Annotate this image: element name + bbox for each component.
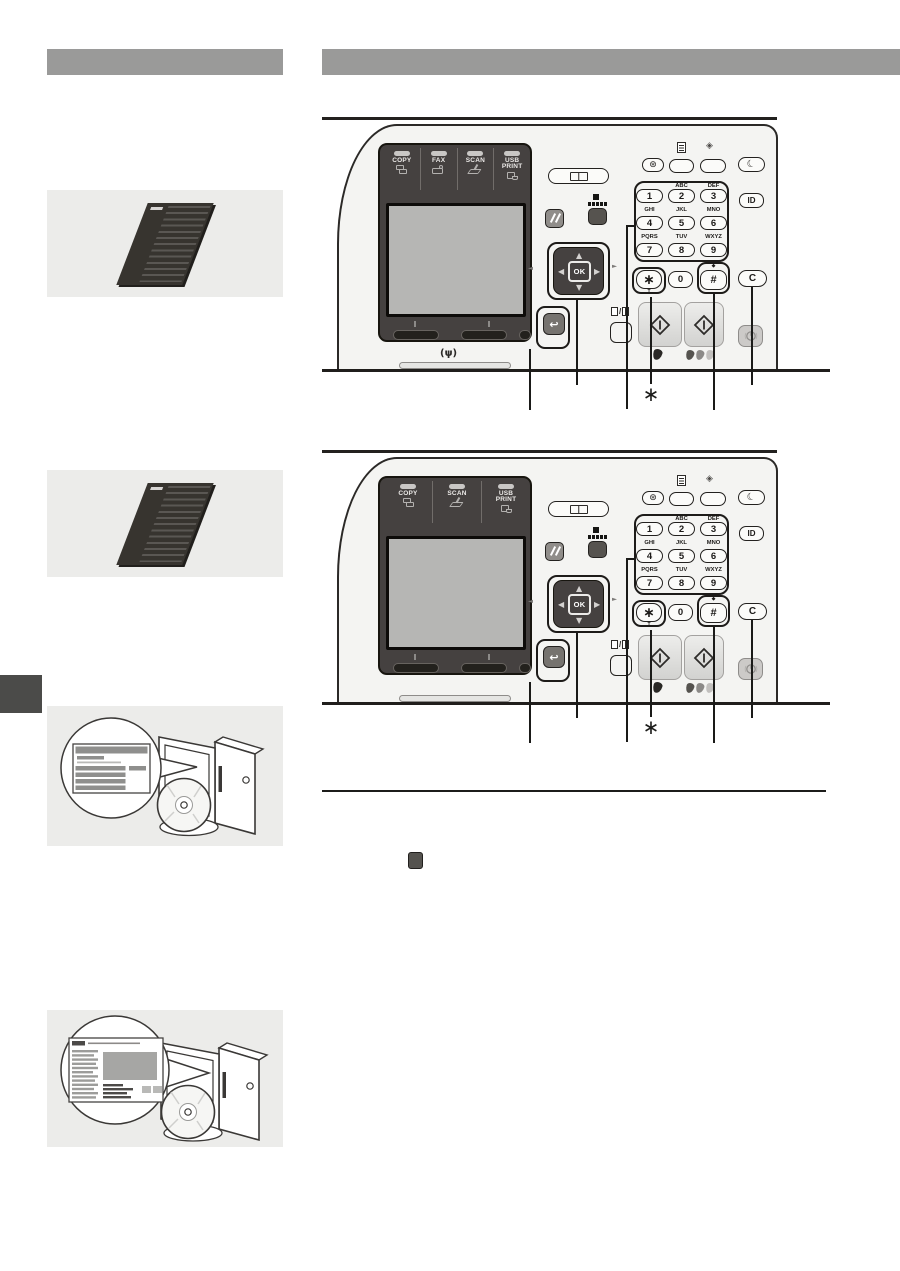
clear-button: C bbox=[738, 270, 767, 287]
setting-guide-illustration bbox=[47, 470, 283, 577]
keypad-letters: GHI bbox=[636, 207, 663, 213]
softkey-tick bbox=[488, 321, 490, 327]
mode-key-label: USB PRINT bbox=[497, 158, 527, 171]
mode-key-row: COPYFAXSCANUSB PRINT bbox=[384, 148, 530, 190]
emanual-page-illustration bbox=[47, 1010, 283, 1147]
emanual-toc-illustration bbox=[47, 706, 283, 846]
usb-print-mode-button: USB PRINT bbox=[493, 148, 530, 190]
stop-icon bbox=[593, 194, 599, 200]
keypad-letters: TUV bbox=[668, 234, 695, 240]
two-sided-button bbox=[610, 322, 632, 343]
numeric-keypad: ∗ T 0 ◆ # 1ABC2DEF3GHI4JKL5MNO6PQRS7TUV8… bbox=[634, 181, 731, 298]
keypad-letters: MNO bbox=[700, 540, 727, 546]
hash-key: # bbox=[700, 270, 727, 290]
copy-mode-button: COPY bbox=[384, 148, 420, 190]
callout-line-clear bbox=[751, 620, 753, 718]
mode-key-row: COPYSCANUSB PRINT bbox=[384, 481, 530, 523]
fax-icon bbox=[432, 165, 445, 175]
mode-key-label: SCAN bbox=[466, 158, 485, 165]
callout-line-hash bbox=[713, 294, 715, 410]
digit-key-3: 3 bbox=[700, 189, 727, 203]
mode-key-led bbox=[394, 151, 410, 156]
quiet-mode-button: ⊛ bbox=[642, 491, 664, 505]
fax-mode-button: FAX bbox=[420, 148, 457, 190]
digit-key-9: 9 bbox=[700, 243, 727, 257]
address-book-icon bbox=[570, 172, 588, 181]
keypad-letters: MNO bbox=[700, 207, 727, 213]
ok-button: OK bbox=[568, 261, 591, 282]
right-arrow-icon: ▶ bbox=[594, 601, 600, 609]
lcd-display bbox=[386, 536, 526, 650]
section-divider-rule bbox=[322, 790, 826, 792]
digit-key-1: 1 bbox=[636, 189, 663, 203]
digit-key-3: 3 bbox=[700, 522, 727, 536]
scan-mode-button: SCAN bbox=[457, 148, 494, 190]
nav-pad: ▲ ▼ ◀ ▶ OK bbox=[553, 580, 604, 628]
address-book-button bbox=[548, 501, 609, 517]
copy-mode-button: COPY bbox=[384, 481, 432, 523]
status-monitor-icon bbox=[677, 475, 686, 486]
volume-left-icon: ◄ bbox=[528, 264, 533, 272]
display-control-block: COPYSCANUSB PRINT bbox=[378, 476, 532, 675]
usb-print-icon bbox=[506, 172, 519, 182]
mode-key-led bbox=[498, 484, 514, 489]
mode-key-label: COPY bbox=[398, 491, 417, 498]
mode-key-led bbox=[504, 151, 520, 156]
start-diamond-icon bbox=[649, 647, 671, 669]
mode-key-label: COPY bbox=[392, 158, 411, 165]
zero-key: 0 bbox=[668, 604, 693, 621]
digit-key-6: 6 bbox=[700, 216, 727, 230]
control-panel-figure-without-fax: COPYSCANUSB PRINT ▲ ▼ ◀ ▶ OK ◄ ► ↩ / ⊛ ◈… bbox=[322, 450, 830, 750]
front-slot bbox=[399, 362, 511, 369]
up-arrow-icon: ▲ bbox=[576, 585, 582, 593]
digit-key-7: 7 bbox=[636, 576, 663, 590]
counter-check-icon: ◈ bbox=[706, 474, 713, 484]
volume-right-icon: ► bbox=[612, 262, 617, 270]
soft-key-left bbox=[393, 330, 439, 340]
stop-button bbox=[588, 541, 607, 558]
address-book-button bbox=[548, 168, 609, 184]
manual-logo bbox=[150, 487, 163, 490]
callout-line-back bbox=[529, 682, 531, 743]
keypad-letters: PQRS bbox=[636, 567, 663, 573]
status-monitor-button bbox=[669, 159, 694, 173]
right-arrow-icon: ▶ bbox=[594, 268, 600, 276]
color-start-button bbox=[684, 302, 724, 347]
machine-top-edge bbox=[322, 117, 777, 120]
color-start-button bbox=[684, 635, 724, 680]
keypad-letters: JKL bbox=[668, 540, 695, 546]
callout-line-keypad bbox=[626, 225, 628, 409]
mode-key-led bbox=[467, 151, 483, 156]
processing-data-indicator bbox=[588, 535, 607, 539]
counter-check-button bbox=[700, 159, 726, 173]
stop-icon bbox=[593, 527, 599, 533]
star-key: ∗ bbox=[636, 603, 662, 622]
bw-start-button bbox=[638, 302, 682, 347]
down-arrow-icon: ▼ bbox=[576, 617, 582, 625]
scan-icon bbox=[469, 165, 482, 175]
softkey-tick bbox=[414, 321, 416, 327]
usb-print-mode-button: USB PRINT bbox=[481, 481, 530, 523]
processing-data-indicator bbox=[588, 202, 607, 206]
digit-key-4: 4 bbox=[636, 216, 663, 230]
mode-key-led bbox=[400, 484, 416, 489]
hash-mark: ◆ bbox=[707, 263, 720, 269]
digit-key-2: 2 bbox=[668, 189, 695, 203]
manual-page: COPYFAXSCANUSB PRINT ▲ ▼ ◀ ▶ OK ◄ ► ↩ / … bbox=[0, 0, 900, 1271]
digit-key-1: 1 bbox=[636, 522, 663, 536]
up-arrow-icon: ▲ bbox=[576, 252, 582, 260]
star-key: ∗ bbox=[636, 270, 662, 289]
callout-line-star bbox=[650, 297, 652, 384]
printed-manual-icon bbox=[116, 483, 213, 565]
scan-icon bbox=[451, 498, 464, 508]
reset-button bbox=[545, 209, 564, 228]
soft-key-left bbox=[393, 663, 439, 673]
bw-start-button bbox=[638, 635, 682, 680]
reset-icon bbox=[549, 546, 561, 557]
monitor-cd-illustration bbox=[47, 1010, 283, 1147]
tone-mark: T bbox=[644, 289, 654, 295]
digit-key-9: 9 bbox=[700, 576, 727, 590]
callout-line-keypad bbox=[626, 558, 628, 742]
keypad-letters: JKL bbox=[668, 207, 695, 213]
callout-line-back bbox=[529, 349, 531, 410]
main-section-header-bar bbox=[322, 49, 900, 75]
pc-tower-icon bbox=[219, 1043, 267, 1140]
callout-line-ok bbox=[576, 300, 578, 385]
down-arrow-icon: ▼ bbox=[576, 284, 582, 292]
chapter-edge-tab bbox=[0, 675, 42, 713]
pc-tower-icon bbox=[215, 737, 263, 834]
keypad-letters: PQRS bbox=[636, 234, 663, 240]
digit-key-6: 6 bbox=[700, 549, 727, 563]
digit-key-4: 4 bbox=[636, 549, 663, 563]
status-monitor-icon bbox=[677, 142, 686, 153]
soft-key-right bbox=[519, 663, 531, 673]
footnote-asterisk: ∗ bbox=[642, 715, 660, 739]
left-arrow-icon: ◀ bbox=[558, 601, 564, 609]
id-button: ID bbox=[739, 193, 764, 208]
counter-check-icon: ◈ bbox=[706, 141, 713, 151]
wifi-mark: (ψ) bbox=[440, 348, 457, 359]
cd-icon bbox=[162, 1086, 215, 1139]
quiet-mode-button: ⊛ bbox=[642, 158, 664, 172]
emanual-toc-window bbox=[73, 744, 150, 793]
left-arrow-icon: ◀ bbox=[558, 268, 564, 276]
nav-pad: ▲ ▼ ◀ ▶ OK bbox=[553, 247, 604, 295]
counter-check-button bbox=[700, 492, 726, 506]
digit-key-8: 8 bbox=[668, 576, 695, 590]
start-diamond-icon bbox=[649, 314, 671, 336]
monitor-cd-illustration bbox=[47, 706, 283, 846]
reset-button bbox=[545, 542, 564, 561]
keypad-letters: WXYZ bbox=[700, 567, 727, 573]
keypad-letters: TUV bbox=[668, 567, 695, 573]
keypad-letters: GHI bbox=[636, 540, 663, 546]
copy-icon bbox=[402, 498, 415, 508]
tone-mark: T bbox=[644, 622, 654, 628]
cd-icon bbox=[158, 779, 211, 832]
hash-mark: ◆ bbox=[707, 596, 720, 602]
soft-key-center bbox=[461, 330, 507, 340]
back-button: ↩ bbox=[543, 313, 565, 335]
numeric-keypad: ∗ T 0 ◆ # 1ABC2DEF3GHI4JKL5MNO6PQRS7TUV8… bbox=[634, 514, 731, 631]
back-button: ↩ bbox=[543, 646, 565, 668]
soft-key-center bbox=[461, 663, 507, 673]
keypad-letters: WXYZ bbox=[700, 234, 727, 240]
mode-key-led bbox=[431, 151, 447, 156]
callout-line-clear bbox=[751, 287, 753, 385]
manual-logo bbox=[150, 207, 163, 210]
hash-key: # bbox=[700, 603, 727, 623]
stop-button bbox=[588, 208, 607, 225]
control-panel-figure-with-fax: COPYFAXSCANUSB PRINT ▲ ▼ ◀ ▶ OK ◄ ► ↩ / … bbox=[322, 117, 830, 417]
callout-line-star bbox=[650, 630, 652, 717]
digit-key-5: 5 bbox=[668, 216, 695, 230]
digit-key-8: 8 bbox=[668, 243, 695, 257]
footnote-asterisk: ∗ bbox=[642, 382, 660, 406]
lcd-display bbox=[386, 203, 526, 317]
id-button: ID bbox=[739, 526, 764, 541]
mode-key-label: FAX bbox=[432, 158, 445, 165]
address-book-icon bbox=[570, 505, 588, 514]
volume-right-icon: ► bbox=[612, 595, 617, 603]
clear-button: C bbox=[738, 603, 767, 620]
emanual-page-window bbox=[69, 1038, 163, 1102]
digit-key-7: 7 bbox=[636, 243, 663, 257]
machine-top-edge bbox=[322, 450, 777, 453]
mode-key-led bbox=[449, 484, 465, 489]
zero-key: 0 bbox=[668, 271, 693, 288]
energy-saver-button: ☾ bbox=[738, 490, 765, 505]
callout-line-hash bbox=[713, 627, 715, 743]
callout-line-ok bbox=[576, 633, 578, 718]
ok-button: OK bbox=[568, 594, 591, 615]
digit-key-2: 2 bbox=[668, 522, 695, 536]
mode-key-label: USB PRINT bbox=[491, 491, 521, 504]
digit-key-5: 5 bbox=[668, 549, 695, 563]
display-control-block: COPYFAXSCANUSB PRINT bbox=[378, 143, 532, 342]
left-section-header-bar bbox=[47, 49, 283, 75]
basic-guide-illustration bbox=[47, 190, 283, 297]
start-diamond-icon bbox=[693, 647, 715, 669]
softkey-tick bbox=[488, 654, 490, 660]
soft-key-right bbox=[519, 330, 531, 340]
front-slot bbox=[399, 695, 511, 702]
status-monitor-button bbox=[669, 492, 694, 506]
start-diamond-icon bbox=[693, 314, 715, 336]
two-sided-button bbox=[610, 655, 632, 676]
volume-left-icon: ◄ bbox=[528, 597, 533, 605]
softkey-tick bbox=[414, 654, 416, 660]
copy-icon bbox=[395, 165, 408, 175]
printed-manual-icon bbox=[116, 203, 213, 285]
energy-saver-button: ☾ bbox=[738, 157, 765, 172]
inline-key-icon bbox=[408, 852, 423, 869]
mode-key-label: SCAN bbox=[447, 491, 466, 498]
usb-print-icon bbox=[500, 505, 513, 515]
scan-mode-button: SCAN bbox=[432, 481, 481, 523]
reset-icon bbox=[549, 213, 561, 224]
